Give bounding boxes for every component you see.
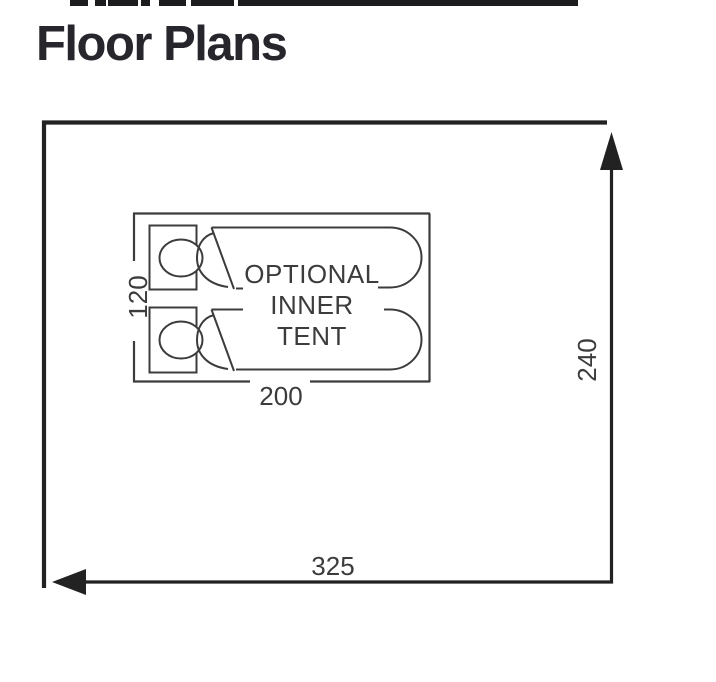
outer-tent-walls: [42, 121, 607, 589]
floor-plans-page: Floor Plans: [0, 0, 716, 682]
inner-tent-label: OPTIONAL INNER TENT: [228, 259, 396, 352]
tent-width-label: 325: [305, 553, 361, 579]
inner-tent-label-line2: INNER: [228, 290, 396, 321]
tent-height-label: 240: [574, 332, 600, 388]
up-arrow-icon: [600, 132, 623, 170]
left-arrow-icon: [52, 569, 86, 595]
inner-tent-label-line3: TENT: [228, 321, 396, 352]
inner-tent-label-line1: OPTIONAL: [228, 259, 396, 290]
dimension-lines: [52, 132, 623, 595]
inner-tent-width-label: 200: [253, 383, 309, 409]
dimension-line-path: [86, 168, 612, 582]
inner-tent-height-label: 120: [125, 269, 151, 325]
